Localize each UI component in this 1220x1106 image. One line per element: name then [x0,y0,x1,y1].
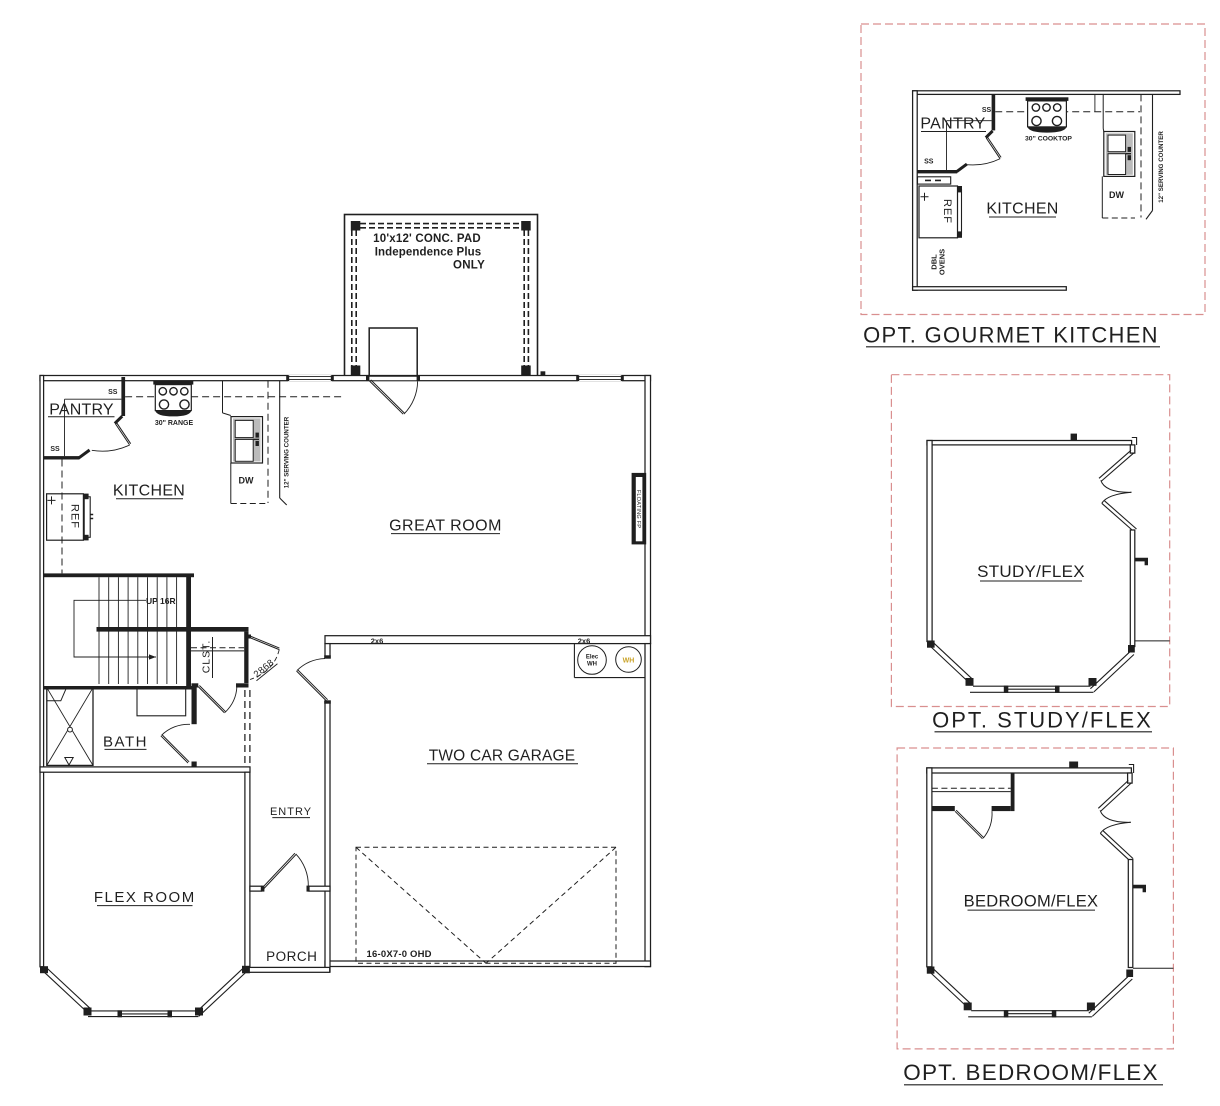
svg-text:SS: SS [50,446,60,453]
svg-text:2x6: 2x6 [371,637,384,646]
svg-text:KITCHEN: KITCHEN [113,483,185,500]
svg-text:GREAT ROOM: GREAT ROOM [389,518,502,535]
svg-text:OPT. GOURMET KITCHEN: OPT. GOURMET KITCHEN [863,323,1159,348]
svg-text:UP 16R: UP 16R [146,596,176,606]
svg-text:STUDY/FLEX: STUDY/FLEX [977,562,1085,581]
svg-text:CLST.: CLST. [201,640,213,674]
svg-text:30" RANGE: 30" RANGE [155,420,194,427]
svg-text:REF: REF [69,504,81,529]
svg-text:BATH: BATH [103,734,148,751]
svg-text:DW: DW [239,476,254,486]
svg-text:OPT. BEDROOM/FLEX: OPT. BEDROOM/FLEX [903,1060,1158,1085]
svg-text:FLEX ROOM: FLEX ROOM [94,889,196,906]
svg-text:PANTRY: PANTRY [920,115,985,132]
svg-text:10'x12' CONC. PAD: 10'x12' CONC. PAD [373,233,481,245]
svg-text:KITCHEN: KITCHEN [986,201,1058,218]
svg-text:Elec: Elec [586,655,599,661]
svg-text:SS: SS [108,389,118,396]
svg-text:ENTRY: ENTRY [270,806,312,818]
svg-text:Independence Plus: Independence Plus [375,247,482,259]
svg-text:TWO CAR GARAGE: TWO CAR GARAGE [429,748,576,765]
svg-text:PORCH: PORCH [266,949,317,964]
svg-text:SS: SS [982,107,992,114]
svg-text:2x6: 2x6 [578,637,591,646]
svg-text:WH: WH [587,662,597,668]
svg-text:12" SERVING COUNTER: 12" SERVING COUNTER [284,416,291,488]
svg-text:BEDROOM/FLEX: BEDROOM/FLEX [964,892,1099,910]
svg-text:REF: REF [941,199,953,224]
svg-text:FLOATING FP: FLOATING FP [635,490,641,529]
svg-text:SS: SS [924,159,934,166]
svg-text:PANTRY: PANTRY [49,402,114,419]
svg-text:16-0X7-0 OHD: 16-0X7-0 OHD [367,949,432,960]
svg-text:OPT. STUDY/FLEX: OPT. STUDY/FLEX [932,708,1153,733]
svg-text:DW: DW [1109,190,1124,200]
svg-text:30" COOKTOP: 30" COOKTOP [1025,136,1072,143]
svg-text:OVENS: OVENS [938,249,947,275]
svg-text:WH: WH [623,658,635,665]
svg-text:12" SERVING COUNTER: 12" SERVING COUNTER [1158,131,1165,203]
svg-text:ONLY: ONLY [453,260,485,272]
